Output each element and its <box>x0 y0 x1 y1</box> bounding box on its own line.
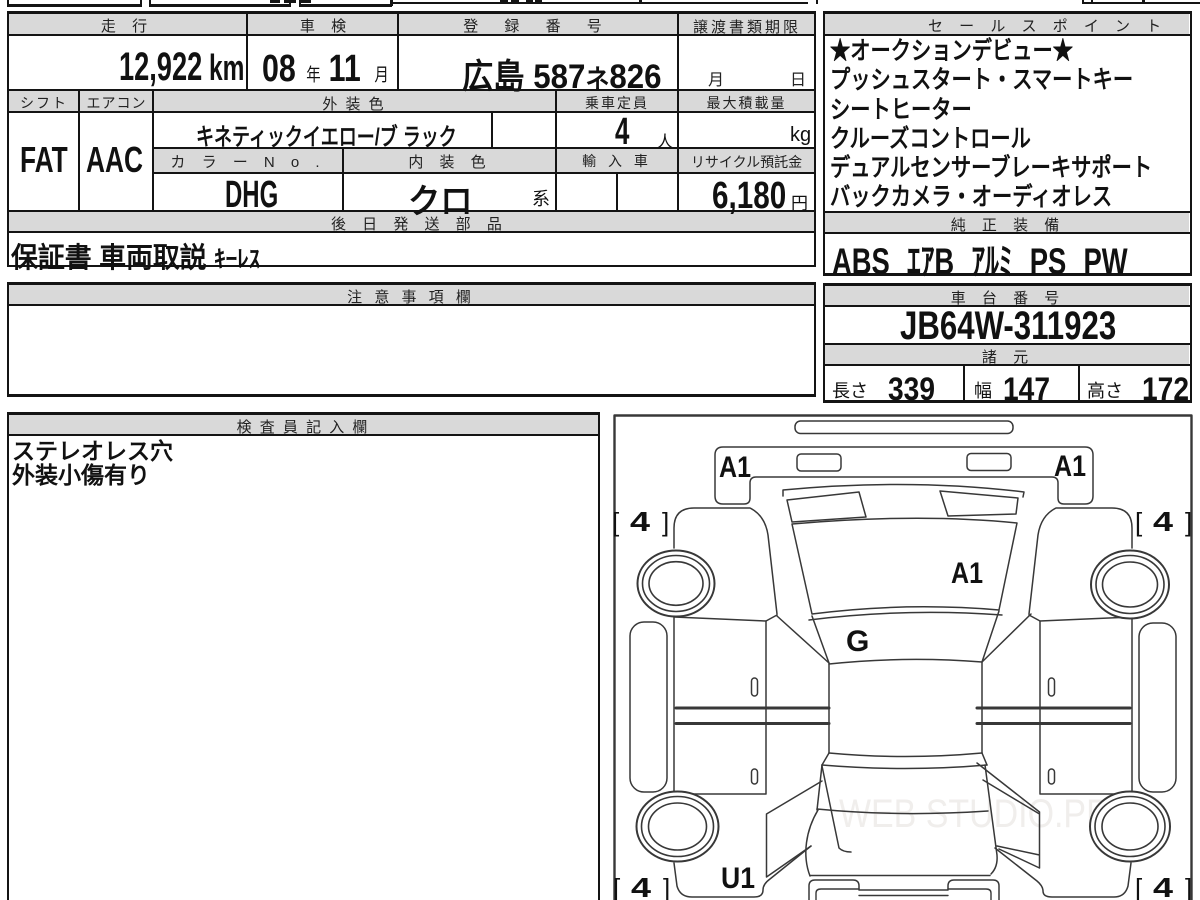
svg-text:[: [ <box>1135 507 1143 537</box>
svg-text:4: 4 <box>1153 872 1174 900</box>
svg-text:G: G <box>846 625 869 658</box>
svg-text:]: ] <box>1185 873 1192 900</box>
svg-text:[: [ <box>1135 873 1143 900</box>
svg-text:[: [ <box>613 873 621 900</box>
svg-text:4: 4 <box>630 506 651 537</box>
svg-text:4: 4 <box>1153 506 1174 537</box>
svg-text:A1: A1 <box>951 557 983 590</box>
svg-text:A1: A1 <box>1054 450 1086 483</box>
svg-text:U1: U1 <box>721 862 755 895</box>
svg-text:]: ] <box>1185 507 1192 537</box>
svg-text:]: ] <box>662 507 669 537</box>
svg-text:]: ] <box>663 873 670 900</box>
svg-text:4: 4 <box>631 872 652 900</box>
svg-text:[: [ <box>612 507 620 537</box>
svg-text:A1: A1 <box>719 451 751 484</box>
